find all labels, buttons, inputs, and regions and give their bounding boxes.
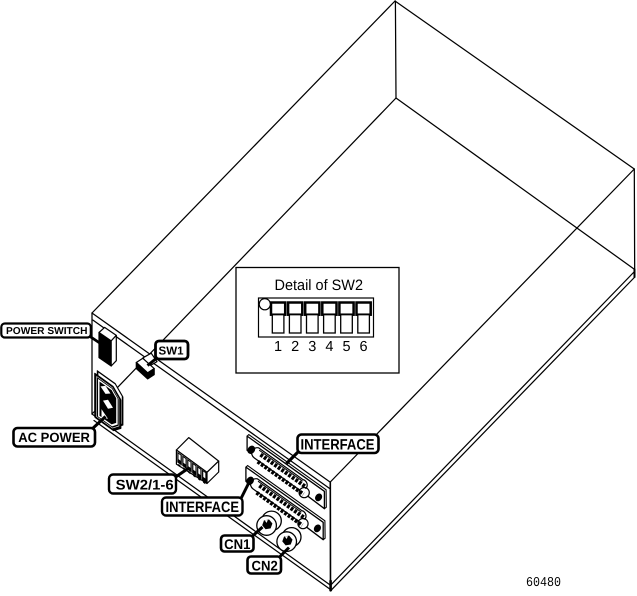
svg-text:CN1: CN1	[224, 536, 250, 552]
svg-text:60480: 60480	[526, 576, 561, 591]
svg-text:6: 6	[360, 339, 368, 355]
svg-text:INTERFACE: INTERFACE	[301, 436, 375, 453]
svg-text:3: 3	[308, 339, 316, 355]
svg-text:INTERFACE: INTERFACE	[166, 499, 240, 516]
svg-text:1: 1	[274, 339, 282, 355]
svg-text:SW1: SW1	[159, 346, 185, 358]
svg-text:Detail of SW2: Detail of SW2	[275, 277, 364, 294]
svg-text:2: 2	[291, 339, 299, 355]
svg-text:POWER SWITCH: POWER SWITCH	[6, 326, 88, 337]
svg-text:5: 5	[342, 339, 350, 355]
svg-text:4: 4	[325, 339, 333, 355]
svg-text:AC POWER: AC POWER	[18, 430, 90, 445]
svg-text:SW2/1-6: SW2/1-6	[116, 477, 174, 493]
svg-text:CN2: CN2	[252, 558, 278, 574]
